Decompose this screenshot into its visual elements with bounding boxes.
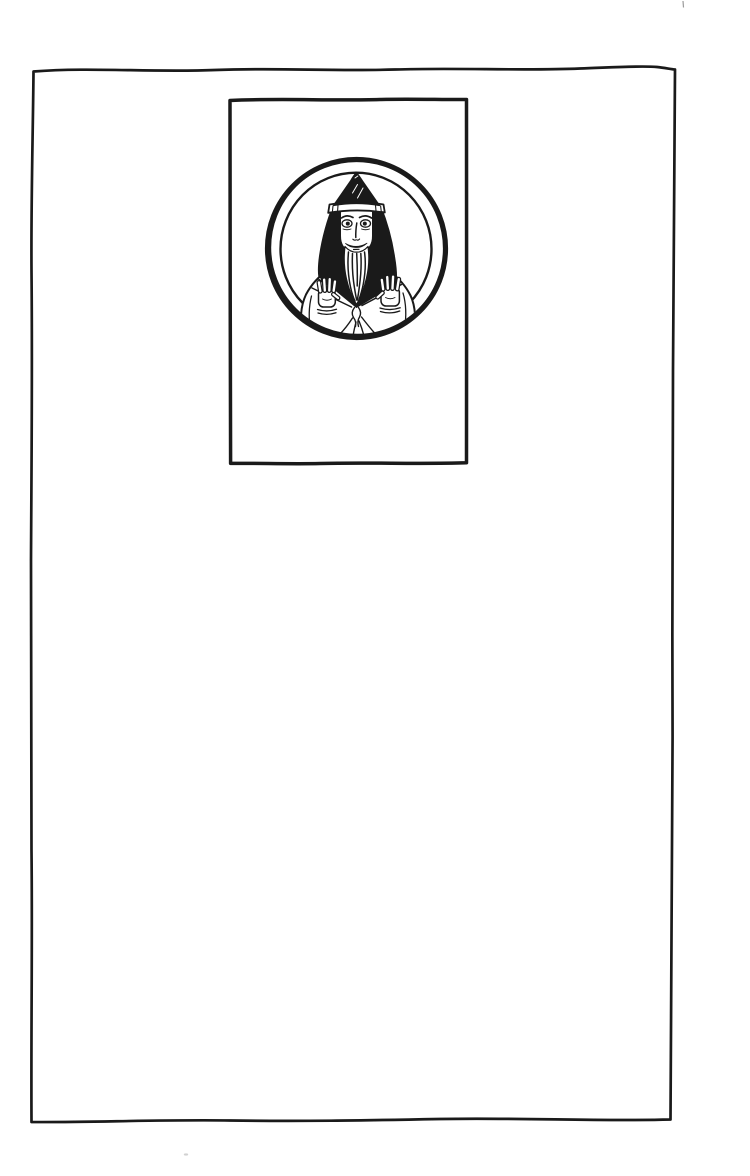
pointed-hood <box>334 173 380 206</box>
stray-mark-top <box>683 1 684 8</box>
right-pupil <box>363 222 367 226</box>
portrait-medallion <box>268 160 446 347</box>
scanned-book-page <box>0 0 750 1176</box>
page-illustration-canvas <box>0 0 750 1176</box>
stray-mark-bottom <box>184 1153 188 1155</box>
left-pupil <box>346 222 350 226</box>
illustration-plate <box>230 99 467 464</box>
monk-figure <box>301 173 415 347</box>
